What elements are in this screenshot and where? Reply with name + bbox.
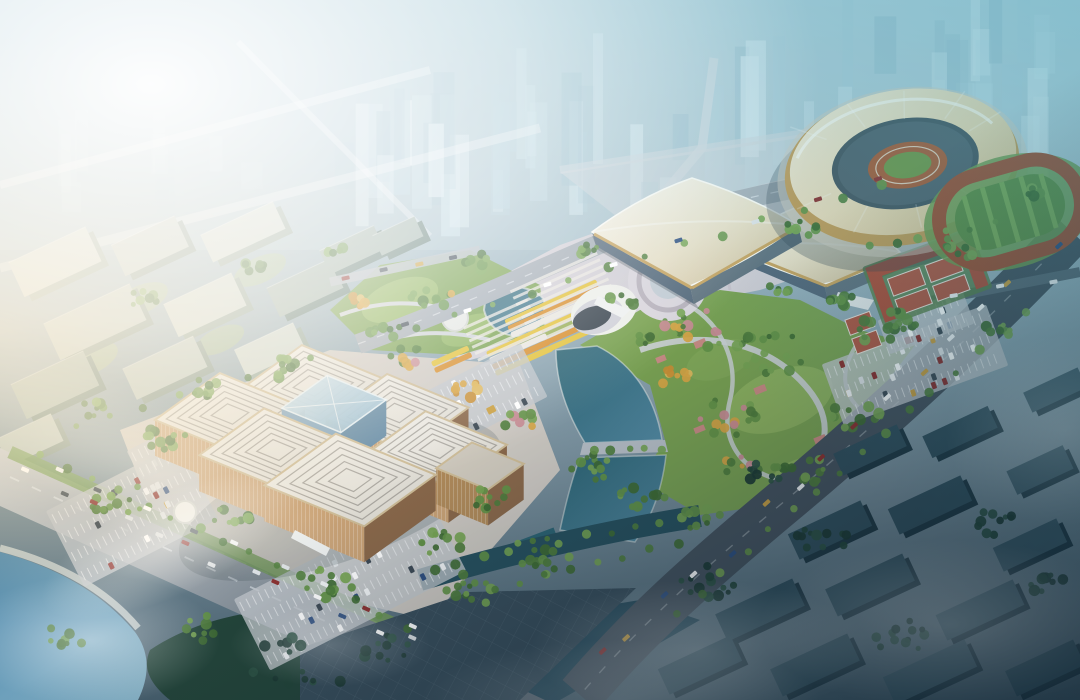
- scene-canvas: [0, 0, 1080, 700]
- aerial-render-image: [0, 0, 1080, 700]
- atmosphere: [0, 0, 1080, 700]
